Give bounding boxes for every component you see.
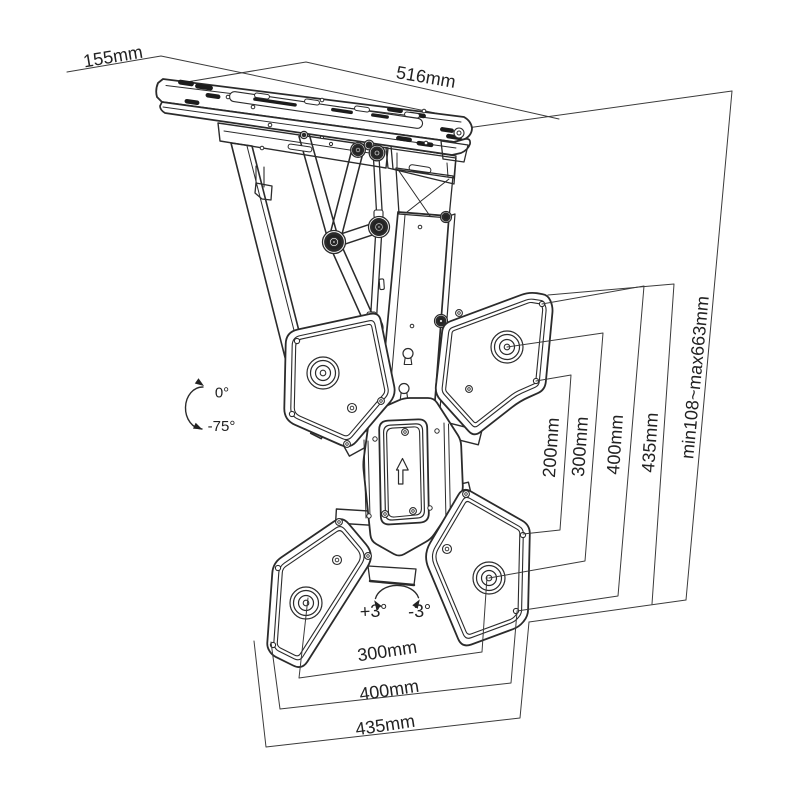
svg-text:-75°: -75°: [208, 418, 236, 435]
svg-text:+3°: +3°: [359, 600, 388, 621]
svg-text:-3°: -3°: [408, 600, 432, 621]
svg-text:200mm: 200mm: [539, 417, 563, 478]
svg-text:400mm: 400mm: [603, 414, 627, 475]
svg-text:0°: 0°: [215, 385, 229, 402]
svg-text:300mm: 300mm: [568, 416, 592, 477]
svg-text:435mm: 435mm: [638, 412, 662, 473]
